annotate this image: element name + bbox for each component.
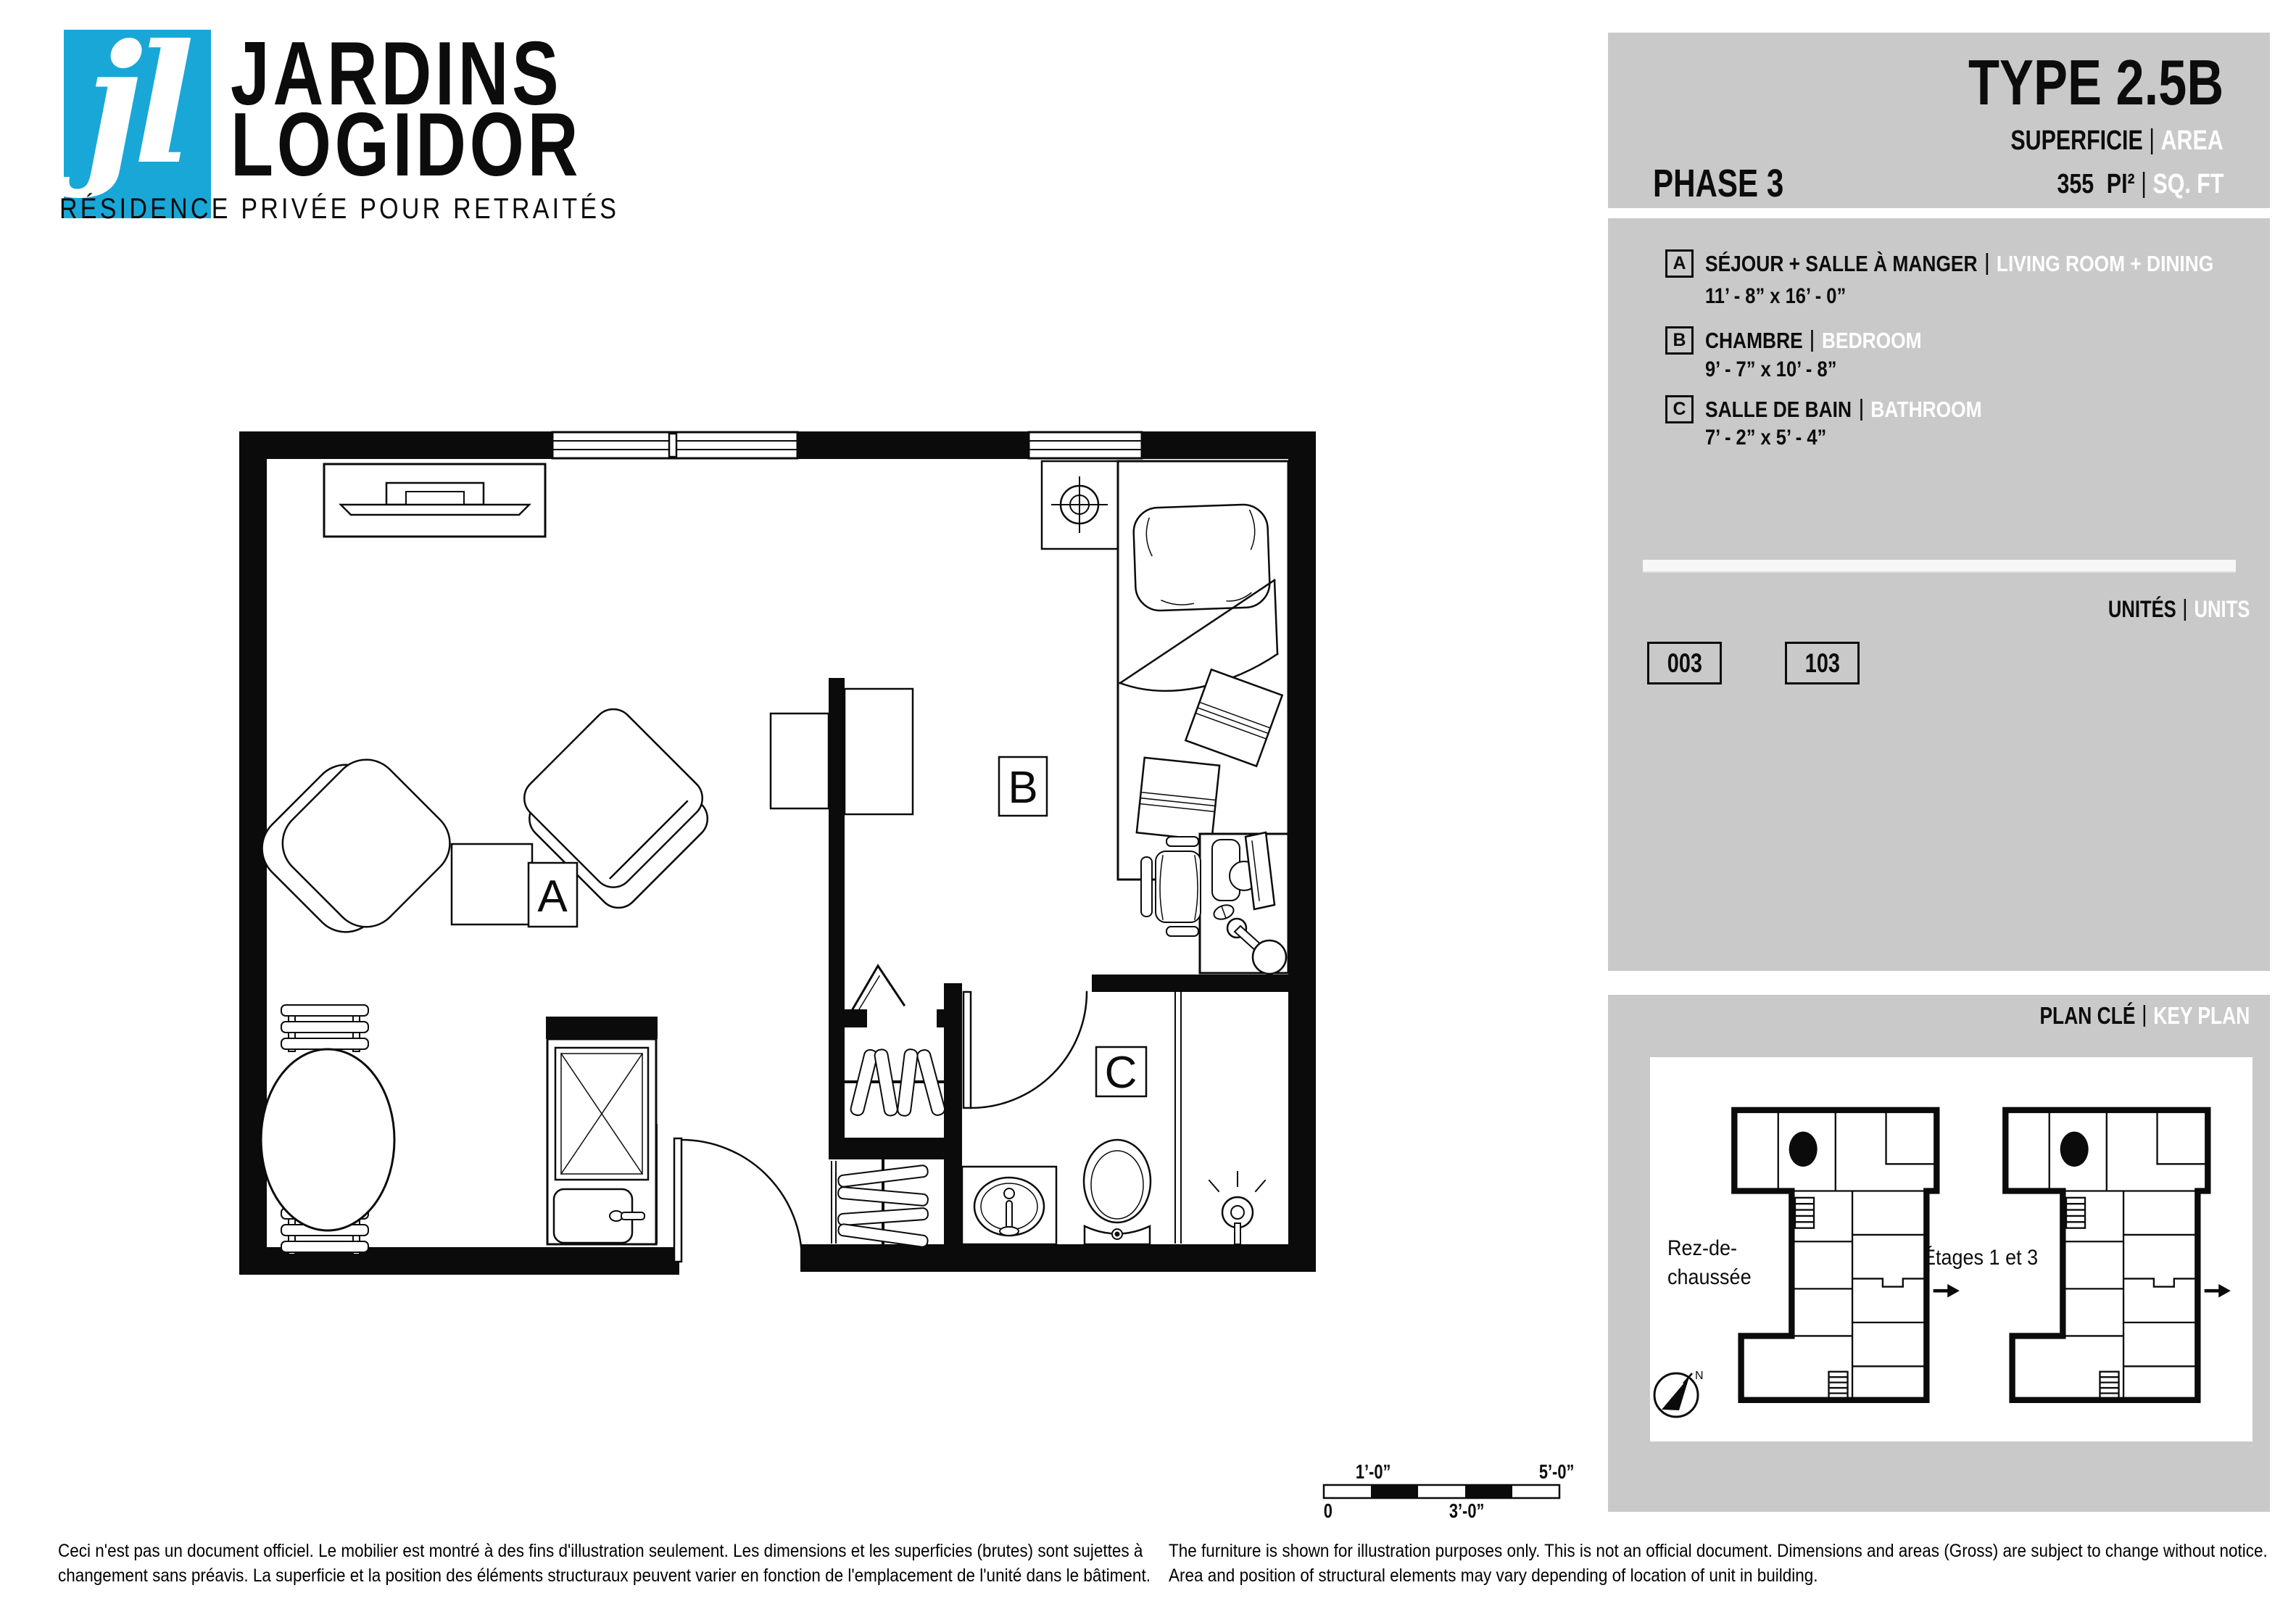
toilet [1084, 1140, 1151, 1244]
units-label-row: UNITÉS UNITS [2108, 596, 2250, 623]
keyplan-label-row: PLAN CLÉ KEY PLAN [2039, 1002, 2250, 1030]
unit-number-003: 003 [1647, 642, 1722, 684]
brand-logo-box: jl [64, 30, 211, 218]
dining-set [261, 1005, 394, 1254]
scalebar-label-1ft: 1’-0” [1344, 1460, 1402, 1484]
hangers-upper [850, 1048, 946, 1117]
label-box-a [529, 863, 577, 927]
label-box-b [999, 757, 1047, 816]
main-floor-plan: A B C [239, 431, 1316, 1275]
cabinet-living-side [771, 713, 829, 808]
label-box-c [1096, 1047, 1146, 1096]
keyplan-floor1-label: Rez-de- chaussée [1667, 1234, 1760, 1292]
brand-monogram: jl [84, 9, 231, 201]
desk-chair [1141, 837, 1201, 936]
legend-row-bedroom: B CHAMBRE BEDROOM [1665, 326, 1960, 355]
desk [1200, 832, 1288, 974]
windows [552, 432, 1142, 458]
legend-key-c: C [1665, 395, 1694, 423]
divider [1812, 330, 1814, 352]
pillow [1133, 504, 1271, 611]
area-unit-en: SQ. FT [2152, 169, 2224, 200]
dining-chair-top [281, 1005, 368, 1051]
room-label-c: C [1105, 1048, 1137, 1098]
room-label-a: A [537, 872, 568, 922]
closet-upper [845, 966, 946, 1117]
tv-console [324, 464, 545, 537]
divider [2142, 172, 2144, 198]
room-name-fr: CHAMBRE [1705, 328, 1803, 354]
phase-label: PHASE 3 [1653, 161, 1820, 206]
blanket-fold [1120, 580, 1277, 691]
throw-cushion-1 [1185, 669, 1282, 766]
walls [239, 431, 1316, 1275]
side-table [452, 844, 532, 924]
divider [2184, 599, 2186, 621]
vanity-sink [962, 1167, 1056, 1244]
keyplan-label-fr: PLAN CLÉ [2039, 1002, 2135, 1030]
floorplan-sheet: jl JARDINS LOGIDOR RÉSIDENCE PRIVÉE POUR… [0, 0, 2296, 1601]
armchair-right [508, 701, 724, 917]
pantry-cabinet [555, 1048, 648, 1180]
room-dims-bathroom: 7’ - 2” x 5’ - 4” [1705, 426, 1848, 450]
refrigerator [554, 1189, 645, 1243]
area-label-row: SUPERFICIE AREA [2011, 125, 2224, 157]
header-panel: PHASE 3 TYPE 2.5B SUPERFICIE AREA 355 PI… [1608, 33, 2270, 208]
divider [2143, 1005, 2144, 1027]
room-name-en: BEDROOM [1822, 328, 1922, 354]
throw-cushion-2 [1137, 758, 1219, 840]
scalebar-label-5ft: 5’-0” [1528, 1460, 1586, 1484]
closet-lower [832, 1160, 929, 1248]
room-dims-living: 11’ - 8” x 16’ - 0” [1705, 284, 1871, 309]
entry-door [674, 1138, 802, 1262]
units-label-fr: UNITÉS [2108, 596, 2176, 623]
unit-number-103: 103 [1785, 642, 1860, 684]
area-value-row: 355 PI² SQ. FT [2057, 169, 2224, 200]
legend-key-a: A [1665, 249, 1694, 278]
area-unit-fr: PI² [2106, 169, 2134, 200]
closet-door-chevron [853, 966, 904, 1009]
brand-tagline: RÉSIDENCE PRIVÉE POUR RETRAITÉS [59, 193, 718, 226]
bathroom-door-leaf [963, 992, 971, 1108]
keyplan-label-en: KEY PLAN [2153, 1002, 2250, 1030]
superficie-label: SUPERFICIE [2011, 125, 2143, 157]
room-label-b: B [1008, 763, 1037, 813]
legend-row-living: A SÉJOUR + SALLE À MANGER LIVING ROOM + … [1665, 249, 2296, 278]
legend-key-b: B [1665, 326, 1694, 355]
legend-row-bathroom: C SALLE DE BAIN BATHROOM [1665, 395, 2031, 423]
area-label: AREA [2161, 125, 2224, 157]
monitor-stand [1230, 861, 1259, 890]
disclaimer-english: The furniture is shown for illustration … [1169, 1539, 2296, 1588]
divider [1860, 399, 1862, 421]
divider [2151, 128, 2152, 154]
wardrobe [845, 689, 913, 814]
room-name-fr: SALLE DE BAIN [1705, 397, 1852, 423]
unit-type-title: TYPE 2.5B [1968, 46, 2224, 120]
room-dims-bedroom: 9’ - 7” x 10’ - 8” [1705, 357, 1860, 382]
divider [1986, 253, 1988, 275]
bed [1118, 461, 1288, 880]
appliance-column [547, 1039, 656, 1244]
bathroom [962, 992, 1265, 1244]
brand-name-line2: LOGIDOR [231, 109, 681, 181]
scale-bar [1324, 1485, 1559, 1498]
monitor [1246, 832, 1275, 909]
room-labels [529, 757, 1146, 1096]
desk-lamp [1227, 919, 1286, 974]
notepad [1212, 840, 1240, 901]
dining-chair-bottom [281, 1208, 368, 1254]
shower-head [1209, 1172, 1265, 1244]
area-value: 355 [2057, 169, 2094, 200]
room-name-fr: SÉJOUR + SALLE À MANGER [1705, 251, 1978, 277]
hangers-lower [837, 1165, 928, 1248]
scalebar-label-3ft: 3’-0” [1438, 1499, 1496, 1523]
room-name-en: LIVING ROOM + DINING [1997, 251, 2213, 277]
computer-mouse [1212, 903, 1235, 922]
armchair-left [249, 738, 464, 953]
units-label-en: UNITS [2194, 596, 2250, 623]
room-name-en: BATHROOM [1870, 397, 1981, 423]
bathroom-door-arc [971, 992, 1087, 1108]
scalebar-label-0: 0 [1314, 1499, 1343, 1523]
shower-partition [1175, 992, 1181, 1243]
dining-table [261, 1049, 394, 1230]
keyplan-floor2-label: Étages 1 et 3 [1923, 1246, 2051, 1270]
nightstand [1042, 461, 1118, 549]
panel-separator-bar [1643, 560, 2236, 573]
